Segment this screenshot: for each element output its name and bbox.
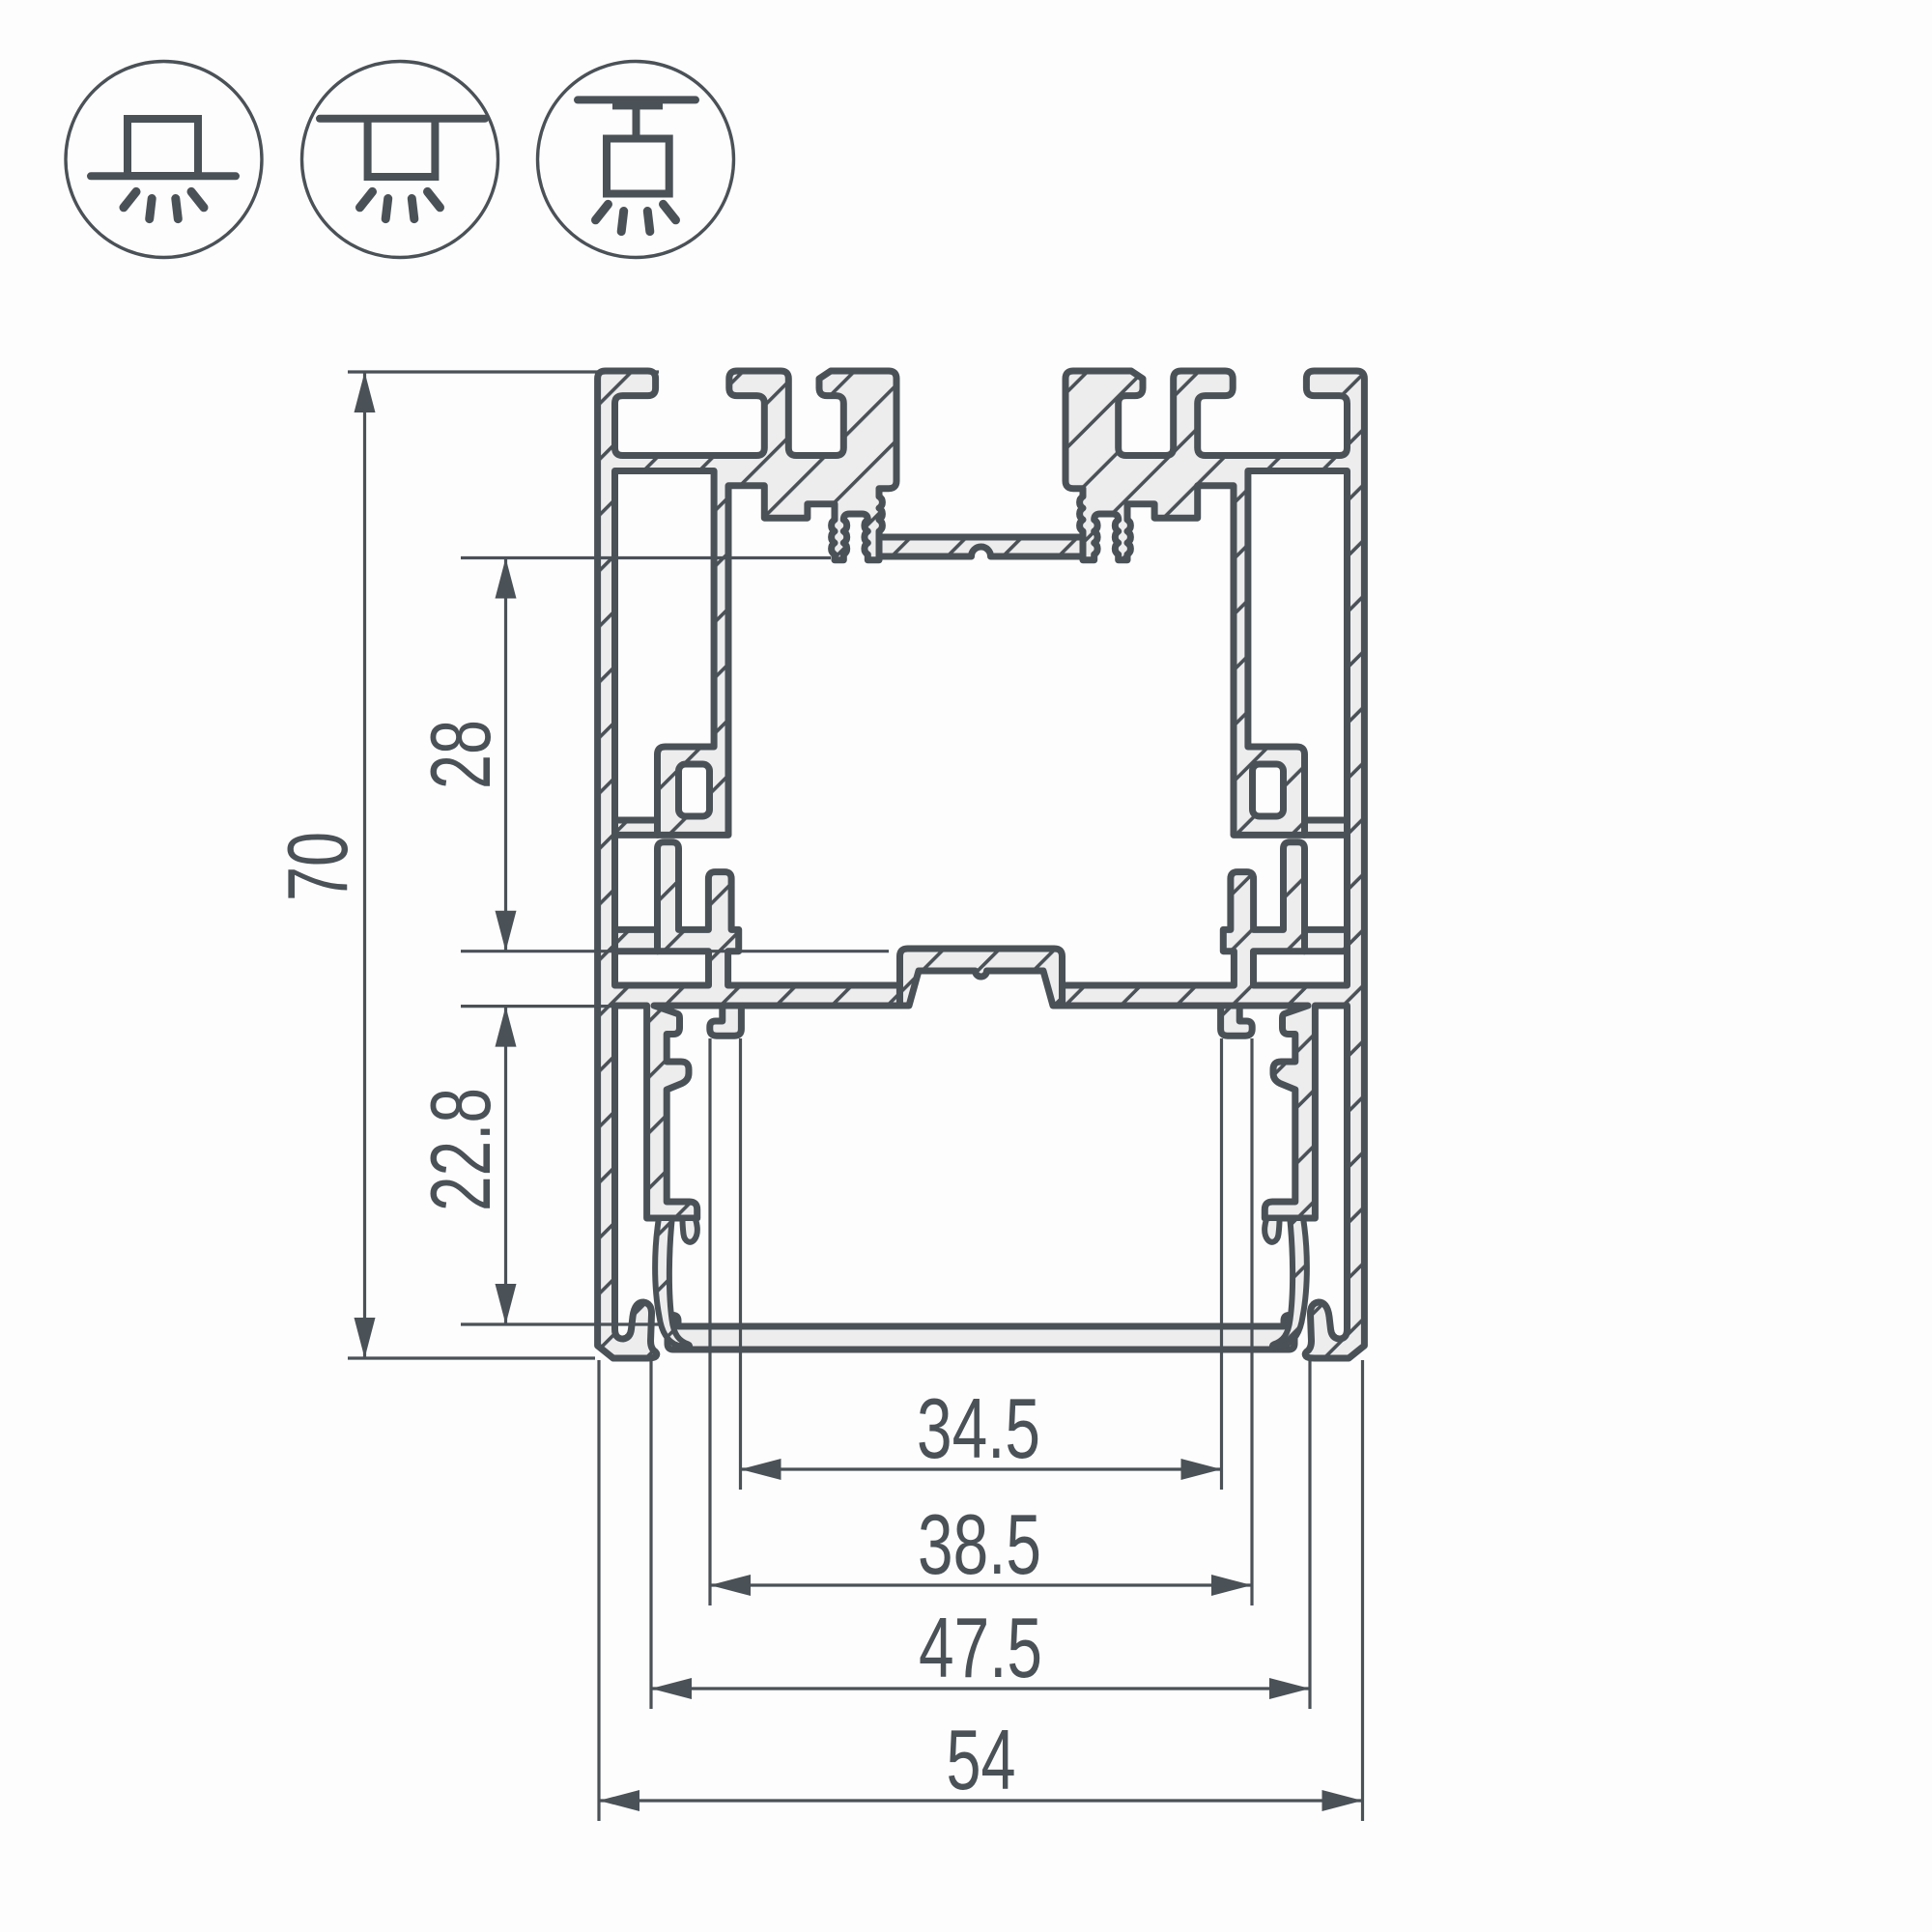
svg-text:38.5: 38.5	[918, 1496, 1041, 1592]
svg-text:22.8: 22.8	[412, 1088, 508, 1211]
svg-text:28: 28	[412, 720, 508, 789]
svg-text:47.5: 47.5	[919, 1600, 1042, 1695]
svg-text:34.5: 34.5	[917, 1380, 1040, 1476]
svg-text:54: 54	[947, 1712, 1016, 1807]
svg-text:70: 70	[270, 832, 365, 901]
